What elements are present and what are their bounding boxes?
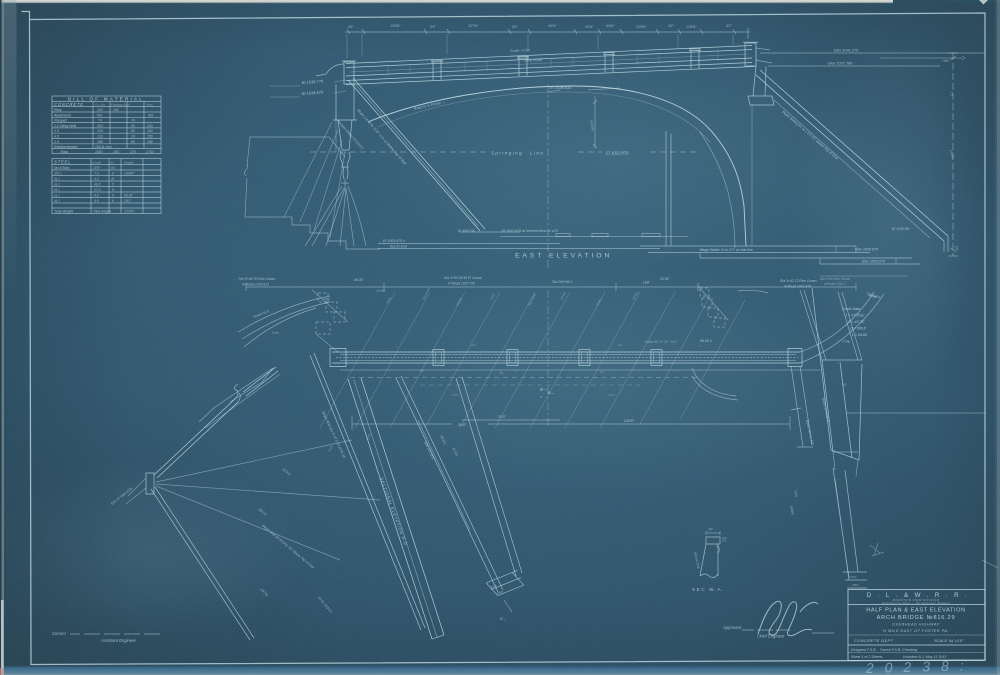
svg-text:¼ □: ¼ □ xyxy=(54,194,61,198)
svg-text:D←: D← xyxy=(500,616,507,621)
svg-text:El 1005.675 ±: El 1005.675 ± xyxy=(383,239,405,243)
svg-text:20238:: 20238: xyxy=(865,657,975,675)
svg-text:74: 74 xyxy=(98,119,102,123)
svg-text:193: 193 xyxy=(113,150,119,154)
svg-text:6¾: 6¾ xyxy=(420,369,425,373)
svg-text:El 1007.90: El 1007.90 xyxy=(458,229,475,233)
svg-text:Springing: Springing xyxy=(491,151,523,156)
svg-text:4'4⅞": 4'4⅞" xyxy=(548,24,557,28)
svg-text:of Road 1041.975: of Road 1041.975 xyxy=(784,285,811,289)
svg-text:30: 30 xyxy=(131,124,135,128)
svg-text:4'6": 4'6" xyxy=(348,25,354,29)
svg-text:HALF PLAN & EAST ELEVATION: HALF PLAN & EAST ELEVATION xyxy=(866,608,966,614)
svg-text:Ring: Ring xyxy=(54,108,61,112)
svg-text:49.6: 49.6 xyxy=(94,183,101,187)
svg-text:Hoboken N.J. May 11 1913: Hoboken N.J. May 11 1913 xyxy=(903,655,946,659)
svg-text:20': 20' xyxy=(841,383,847,387)
svg-text:Sta 2+93.55 55 El Crown: Sta 2+93.55 55 El Crown xyxy=(444,276,482,280)
svg-text:1:4: 1:4 xyxy=(54,140,59,144)
svg-text:41: 41 xyxy=(111,177,115,181)
svg-text:Cu.Yds: Cu.Yds xyxy=(95,103,105,107)
svg-text:B←: B← xyxy=(500,371,506,375)
svg-text:188: 188 xyxy=(147,140,153,144)
svg-text:159: 159 xyxy=(147,135,153,139)
svg-text:6¾: 6¾ xyxy=(600,370,605,374)
svg-text:Approved: Approved xyxy=(722,625,742,630)
svg-text:333: 333 xyxy=(147,124,153,128)
svg-text:El 1022.870: El 1022.870 xyxy=(606,151,629,156)
svg-text:6'9": 6'9" xyxy=(512,25,518,29)
svg-text:6: 6 xyxy=(112,194,114,198)
svg-text:Link: Link xyxy=(643,281,650,285)
svg-text:Correct: Correct xyxy=(52,631,67,636)
svg-text:Total: Total xyxy=(60,150,68,154)
svg-text:2'6⅞: 2'6⅞ xyxy=(851,583,859,587)
svg-text:4:8: 4:8 xyxy=(54,135,59,139)
svg-text:4'0": 4'0" xyxy=(726,24,732,28)
svg-text:193: 193 xyxy=(97,108,103,112)
svg-text:3'4⅞: 3'4⅞ xyxy=(452,393,459,397)
svg-text:7'7⅞: 7'7⅞ xyxy=(842,340,850,344)
svg-text:Footings Abut.: Footings Abut. xyxy=(111,103,130,107)
svg-text:+: + xyxy=(515,369,517,373)
svg-text:1:3: 1:3 xyxy=(54,129,59,133)
svg-text:El 1038.810: El 1038.810 xyxy=(550,85,572,90)
svg-text:El 1007.975 at Intersections o: El 1007.975 at Intersections of ⇄ E. xyxy=(502,229,559,233)
svg-text:STEEL: STEEL xyxy=(54,160,71,165)
svg-text:+: + xyxy=(676,369,678,373)
svg-text:Line: Line xyxy=(530,151,544,156)
svg-text:8: 8 xyxy=(112,188,114,192)
svg-text:139: 139 xyxy=(97,135,103,139)
svg-text:CONCRETE DEPT: CONCRETE DEPT xyxy=(854,638,894,643)
svg-text:Rock Profile: Rock Profile xyxy=(524,58,543,63)
svg-text:Sheet 1 of 2 Sheets: Sheet 1 of 2 Sheets xyxy=(851,655,883,659)
svg-text:13'9⅜": 13'9⅜" xyxy=(636,25,647,29)
svg-text:4.6: 4.6 xyxy=(94,194,99,198)
svg-text:¾ □: ¾ □ xyxy=(54,199,61,203)
svg-text:7.0: 7.0 xyxy=(94,172,99,176)
svg-text:661: 661 xyxy=(148,113,154,117)
svg-text:Engineering Dept — Div Enginee: Engineering Dept — Div Engineer Bridges xyxy=(882,601,950,605)
svg-text:9¼: 9¼ xyxy=(618,343,623,347)
svg-text:Sta 3+96 Elev Crown: Sta 3+96 Elev Crown xyxy=(820,277,850,281)
svg-text:Elev 1003.675: Elev 1003.675 xyxy=(862,260,885,264)
svg-text:Elev 1037.790: Elev 1037.790 xyxy=(828,62,853,66)
svg-text:104: 104 xyxy=(97,129,103,133)
svg-text:+: + xyxy=(396,345,398,349)
svg-text:661: 661 xyxy=(97,113,103,117)
svg-text:20: 20 xyxy=(130,135,135,139)
svg-text:No.5 Bars: No.5 Bars xyxy=(54,166,70,170)
svg-text:Apron End: Apron End xyxy=(389,245,408,249)
svg-text:Assistant Engineer: Assistant Engineer xyxy=(100,638,137,643)
svg-text:4.3: 4.3 xyxy=(94,177,99,181)
svg-text:Weight: Weight xyxy=(124,160,133,164)
svg-text:+20¾: +20¾ xyxy=(322,297,330,301)
svg-text:Sta 3+42.72 Elev Crown: Sta 3+42.72 Elev Crown xyxy=(780,279,817,283)
svg-text:Chief Engineer: Chief Engineer xyxy=(757,634,785,639)
svg-text:Begin Batter ¾ to 1'0" on this: Begin Batter ¾ to 1'0" on this line xyxy=(700,248,753,252)
svg-text:ARCH BRIDGE №816.29: ARCH BRIDGE №816.29 xyxy=(877,615,956,621)
svg-text:+9¾: +9¾ xyxy=(470,343,476,347)
svg-text:¾ □: ¾ □ xyxy=(54,183,61,187)
svg-text:+: + xyxy=(556,344,558,348)
svg-text:Curve Data: Curve Data xyxy=(842,307,860,311)
svg-text:4'6": 4'6" xyxy=(668,24,674,28)
svg-text:+: + xyxy=(700,344,702,348)
svg-text:4'3⅞": 4'3⅞" xyxy=(585,25,594,29)
svg-text:Total Weight: Total Weight xyxy=(54,209,74,213)
svg-text:Total: Total xyxy=(146,103,153,107)
svg-text:6'9": 6'9" xyxy=(430,25,436,29)
svg-text:Abutments: Abutments xyxy=(53,113,71,117)
svg-text:2'1: 2'1 xyxy=(721,539,726,543)
svg-text:18'9": 18'9" xyxy=(93,166,101,170)
svg-text:6: 6 xyxy=(112,199,114,203)
svg-text:34'0": 34'0" xyxy=(458,423,467,427)
svg-text:Batter 95.74 1-E 3'4⅞: Batter 95.74 1-E 3'4⅞ xyxy=(645,340,677,344)
svg-text:230'0": 230'0" xyxy=(623,419,635,423)
svg-text:13700°: 13700° xyxy=(124,209,135,213)
svg-text:Length: Length xyxy=(92,160,102,164)
svg-text:60: 60 xyxy=(131,129,135,133)
svg-text:4.6: 4.6 xyxy=(94,199,99,203)
svg-text:1½ □: 1½ □ xyxy=(54,172,63,176)
svg-text:130.°: 130.° xyxy=(124,199,132,203)
svg-text:2'2⅞: 2'2⅞ xyxy=(849,575,857,579)
svg-text:Designed F.S.B. Traced F.S.B: Designed F.S.B. Traced F.S.B. Checking xyxy=(851,648,917,652)
svg-text:EAST ELEVATION: EAST ELEVATION xyxy=(515,253,612,260)
svg-text:No.: No. xyxy=(110,160,115,164)
svg-text:½ MILE EAST OF FOSTER PA.: ½ MILE EAST OF FOSTER PA. xyxy=(883,629,949,633)
svg-text:Elev 1005.675: Elev 1005.675 xyxy=(855,248,878,252)
svg-text:2°= 43.75': 2°= 43.75' xyxy=(847,320,865,324)
svg-text:35.96': 35.96' xyxy=(660,277,669,281)
svg-text:188: 188 xyxy=(97,140,103,144)
svg-text:8: 8 xyxy=(112,172,114,176)
svg-text:SEC W.A.: SEC W.A. xyxy=(692,587,725,592)
svg-text:+8⅜: +8⅜ xyxy=(942,59,949,63)
svg-text:1:2 Wing Wall: 1:2 Wing Wall xyxy=(54,124,76,128)
svg-text:303: 303 xyxy=(97,124,103,128)
svg-text:17.0: 17.0 xyxy=(94,188,101,192)
svg-text:84: 84 xyxy=(111,166,115,170)
svg-text:1693: 1693 xyxy=(95,150,103,154)
svg-text:of Road 1037.700: of Road 1037.700 xyxy=(448,282,475,286)
svg-text:193: 193 xyxy=(113,108,119,112)
svg-text:Center: Center xyxy=(376,289,387,293)
svg-text:15'7⅜": 15'7⅜" xyxy=(468,24,479,28)
svg-text:74: 74 xyxy=(131,119,135,123)
svg-text:5: 5 xyxy=(112,183,114,187)
svg-text:Kerb →: Kerb → xyxy=(272,331,283,335)
svg-text:Reinforcement: Reinforcement xyxy=(54,145,78,149)
svg-text:Sta 294+66.0: Sta 294+66.0 xyxy=(552,280,572,284)
svg-text:El 1010.58: El 1010.58 xyxy=(892,227,909,231)
svg-text:½ □: ½ □ xyxy=(54,188,61,192)
svg-text:SCALE ¾₆"=1'0": SCALE ¾₆"=1'0" xyxy=(934,638,964,643)
svg-text:1730: 1730 xyxy=(146,150,154,154)
svg-text:86.16' ±: 86.16' ± xyxy=(700,339,712,343)
svg-text:48.46': 48.46' xyxy=(354,278,363,282)
svg-text:of Road 1033.812: of Road 1033.812 xyxy=(242,283,269,287)
svg-text:B—: B— xyxy=(548,390,556,395)
svg-text:164: 164 xyxy=(147,129,153,133)
svg-text:13'9⅜": 13'9⅜" xyxy=(390,24,401,28)
svg-text:33'0": 33'0" xyxy=(498,415,507,419)
svg-text:3'4⅞: 3'4⅞ xyxy=(608,393,615,397)
svg-text:13'9⅜": 13'9⅜" xyxy=(686,25,697,29)
svg-text:60: 60 xyxy=(131,140,135,144)
svg-text:170: 170 xyxy=(130,150,136,154)
svg-text:Elev 1041.270: Elev 1041.270 xyxy=(834,49,859,53)
svg-text:13280°: 13280° xyxy=(124,172,135,176)
svg-text:¾ □: ¾ □ xyxy=(54,177,61,181)
svg-text:Parapet: Parapet xyxy=(54,119,68,123)
svg-text:OVERHEAD HIGHWAY: OVERHEAD HIGHWAY xyxy=(892,623,940,627)
svg-text:2'0": 2'0" xyxy=(707,528,714,532)
svg-text:B: B xyxy=(540,395,542,399)
svg-text:of Road 1041.1: of Road 1041.1 xyxy=(824,282,846,286)
svg-text:60.30°: 60.30° xyxy=(124,194,134,198)
svg-text:Total Weight: Total Weight xyxy=(93,209,112,213)
svg-text:156 lb. tool: 156 lb. tool xyxy=(95,145,112,149)
svg-text:The 5+40.76 Elev Crown: The 5+40.76 Elev Crown xyxy=(238,277,276,281)
svg-text:4'6⅞": 4'6⅞" xyxy=(606,24,615,28)
svg-text:CONCRETE: CONCRETE xyxy=(54,102,84,107)
svg-text:B—: B— xyxy=(540,387,548,392)
